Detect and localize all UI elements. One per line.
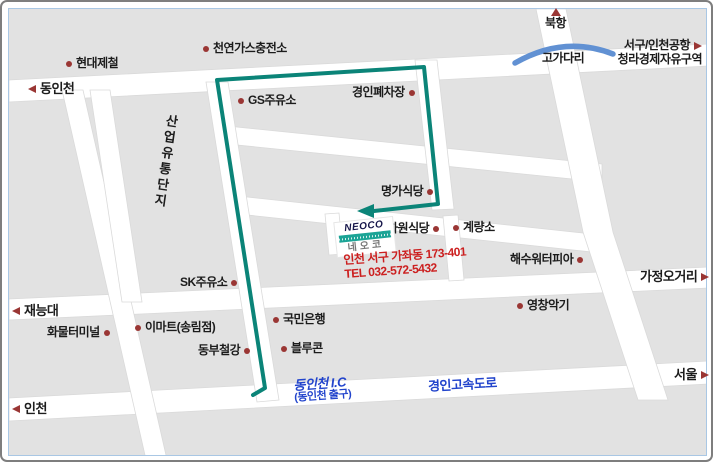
right-arrow-icon — [694, 42, 702, 50]
landmark-label: 경인폐차장 — [352, 86, 405, 99]
direction-label: 서울 — [674, 368, 697, 382]
marker-dot-icon — [238, 98, 244, 104]
marker-dot-icon — [409, 90, 415, 96]
direction-seoul: 서울 — [674, 368, 709, 382]
landmark-label: 고가다리 — [542, 52, 584, 65]
landmark-label: 동부철강 — [198, 344, 240, 357]
marker-dot-icon — [203, 46, 209, 52]
landmark-hawon: 하원식당 — [387, 222, 439, 235]
landmark-kb-bank: 국민은행 — [273, 313, 325, 326]
direction-airport: 서구/인천공항 청라경제자유구역 — [602, 39, 702, 66]
direction-bukhang: 북항 — [545, 8, 566, 30]
landmark-gyeryangso: 계량소 — [453, 221, 495, 234]
left-arrow-icon — [12, 307, 20, 315]
marker-dot-icon — [231, 280, 237, 286]
direction-jaeneung: 재능대 — [12, 304, 58, 318]
direction-label: 동인천 — [40, 82, 74, 96]
highway-label: 경인고속도로 — [428, 372, 498, 395]
up-arrow-icon — [551, 8, 561, 16]
landmark-label: 화물터미널 — [47, 326, 100, 339]
interchange-label: 동인천 I.C (동인천 출구) — [293, 375, 352, 405]
landmark-junkyard: 경인폐차장 — [352, 86, 415, 99]
direction-label: 가정오거리 — [640, 270, 697, 284]
map-frame: 동인천 북항 서구/인천공항 청라경제자유구역 재능대 가정오거리 서울 인천 … — [0, 0, 713, 462]
road-mid-upper — [227, 126, 602, 182]
direction-label: 인천 — [24, 402, 47, 416]
landmark-cng-station: 천연가스충전소 — [203, 42, 287, 55]
marker-dot-icon — [427, 189, 433, 195]
left-arrow-icon — [28, 85, 36, 93]
landmark-bluecon: 블루콘 — [281, 342, 323, 355]
direction-dongincheon: 동인천 — [28, 82, 74, 96]
marker-dot-icon — [433, 226, 439, 232]
marker-dot-icon — [104, 330, 110, 336]
right-arrow-icon — [701, 273, 709, 281]
left-arrow-icon — [12, 405, 20, 413]
landmark-myeongga: 명가식당 — [381, 185, 433, 198]
direction-label: 서구/인천공항 — [624, 39, 690, 52]
landmark-cargo-terminal: 화물터미널 — [47, 326, 110, 339]
landmark-label: 해수워터피아 — [510, 253, 573, 266]
landmark-label: SK주유소 — [180, 276, 227, 289]
landmark-sk-station: SK주유소 — [180, 276, 237, 289]
direction-label: 재능대 — [24, 304, 58, 318]
landmark-dongbu-steel: 동부철강 — [198, 344, 250, 357]
marker-dot-icon — [281, 346, 287, 352]
landmark-label: 국민은행 — [283, 313, 325, 326]
landmark-label: 천연가스충전소 — [213, 42, 287, 55]
landmark-yeongchang: 영창악기 — [517, 299, 569, 312]
landmark-label: 명가식당 — [381, 185, 423, 198]
direction-label: 청라경제자유구역 — [618, 53, 702, 66]
landmark-label: 영창악기 — [527, 299, 569, 312]
landmark-label: 블루콘 — [291, 342, 323, 355]
landmark-gogadari: 고가다리 — [542, 52, 584, 65]
landmark-label: GS주유소 — [248, 94, 296, 107]
landmark-hyundai-steel: 현대제철 — [66, 57, 118, 70]
landmark-emart: 이마트(송림점) — [135, 321, 215, 334]
landmark-gs-station: GS주유소 — [238, 94, 296, 107]
landmark-label: 계량소 — [463, 221, 495, 234]
landmark-waterpia: 해수워터피아 — [510, 253, 583, 266]
marker-dot-icon — [273, 317, 279, 323]
marker-dot-icon — [135, 325, 141, 331]
marker-dot-icon — [66, 61, 72, 67]
right-arrow-icon — [701, 371, 709, 379]
marker-dot-icon — [577, 257, 583, 263]
direction-gajeong: 가정오거리 — [640, 270, 709, 284]
marker-dot-icon — [517, 303, 523, 309]
direction-label: 북항 — [545, 17, 566, 30]
marker-dot-icon — [453, 225, 459, 231]
direction-incheon: 인천 — [12, 402, 47, 416]
road-expressway — [9, 361, 708, 421]
marker-dot-icon — [244, 348, 250, 354]
landmark-label: 이마트(송림점) — [145, 321, 215, 334]
landmark-label: 현대제철 — [76, 57, 118, 70]
